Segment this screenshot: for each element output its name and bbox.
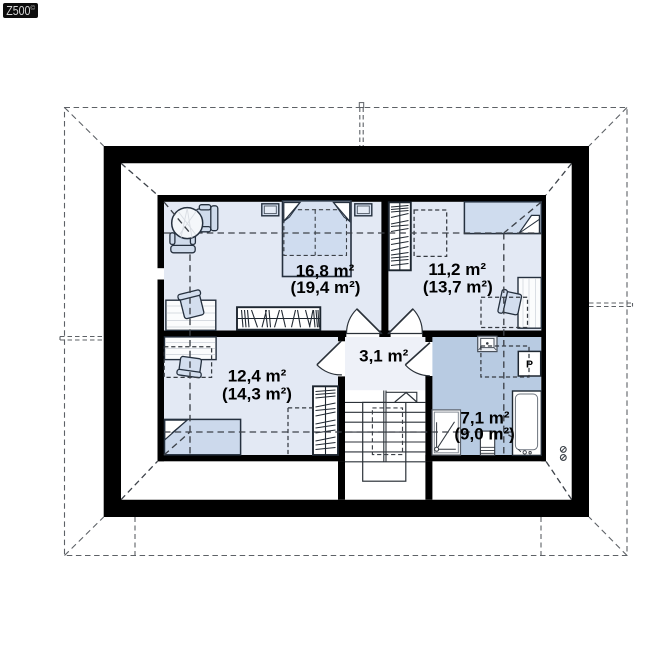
svg-text:11,2 m²: 11,2 m²: [428, 260, 486, 279]
svg-text:3,1 m²: 3,1 m²: [359, 347, 408, 366]
svg-text:(9,0 m²): (9,0 m²): [454, 425, 514, 444]
svg-text:(19,4 m²): (19,4 m²): [291, 278, 361, 297]
svg-text:(13,7 m²): (13,7 m²): [423, 278, 493, 297]
svg-text:(14,3 m²): (14,3 m²): [222, 385, 292, 404]
svg-text:Z500: Z500: [6, 4, 30, 18]
svg-text:©: ©: [30, 4, 35, 12]
svg-text:12,4 m²: 12,4 m²: [228, 367, 287, 386]
